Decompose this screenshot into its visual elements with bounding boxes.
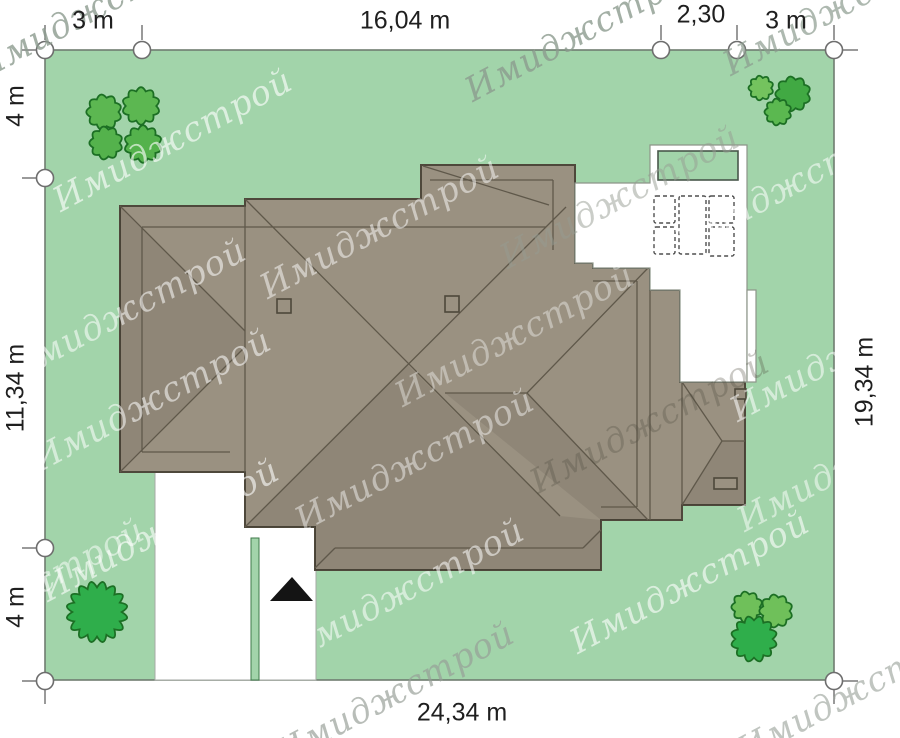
dim-top-right: 3 m xyxy=(765,7,807,35)
dimension-marker xyxy=(37,673,54,690)
dim-top-width: 16,04 m xyxy=(360,7,450,35)
dimension-marker xyxy=(826,42,843,59)
dim-top-pool: 2,30 xyxy=(677,1,726,29)
tree xyxy=(732,617,777,662)
chimney xyxy=(445,296,459,312)
dim-bottom-width: 24,34 m xyxy=(417,699,507,727)
dimension-marker xyxy=(653,42,670,59)
site-plan-canvas: ИмиджстройИмиджстройИмиджстройИмиджстрой… xyxy=(0,0,900,738)
dim-top-left: 3 m xyxy=(72,7,114,35)
site-plan-drawing: ИмиджстройИмиджстройИмиджстройИмиджстрой… xyxy=(0,0,900,738)
roof-vent xyxy=(714,478,737,489)
dim-left-bottom: 4 m xyxy=(2,586,30,628)
dim-left-middle: 11,34 m xyxy=(2,344,30,432)
tree xyxy=(749,76,773,101)
tree xyxy=(123,87,159,125)
tree xyxy=(86,95,120,130)
dim-right-side: 19,34 m xyxy=(851,337,879,427)
tree xyxy=(765,99,791,126)
dim-left-top: 4 m xyxy=(2,85,30,127)
dimension-marker xyxy=(134,42,151,59)
driveway-divider-strip xyxy=(251,538,259,680)
